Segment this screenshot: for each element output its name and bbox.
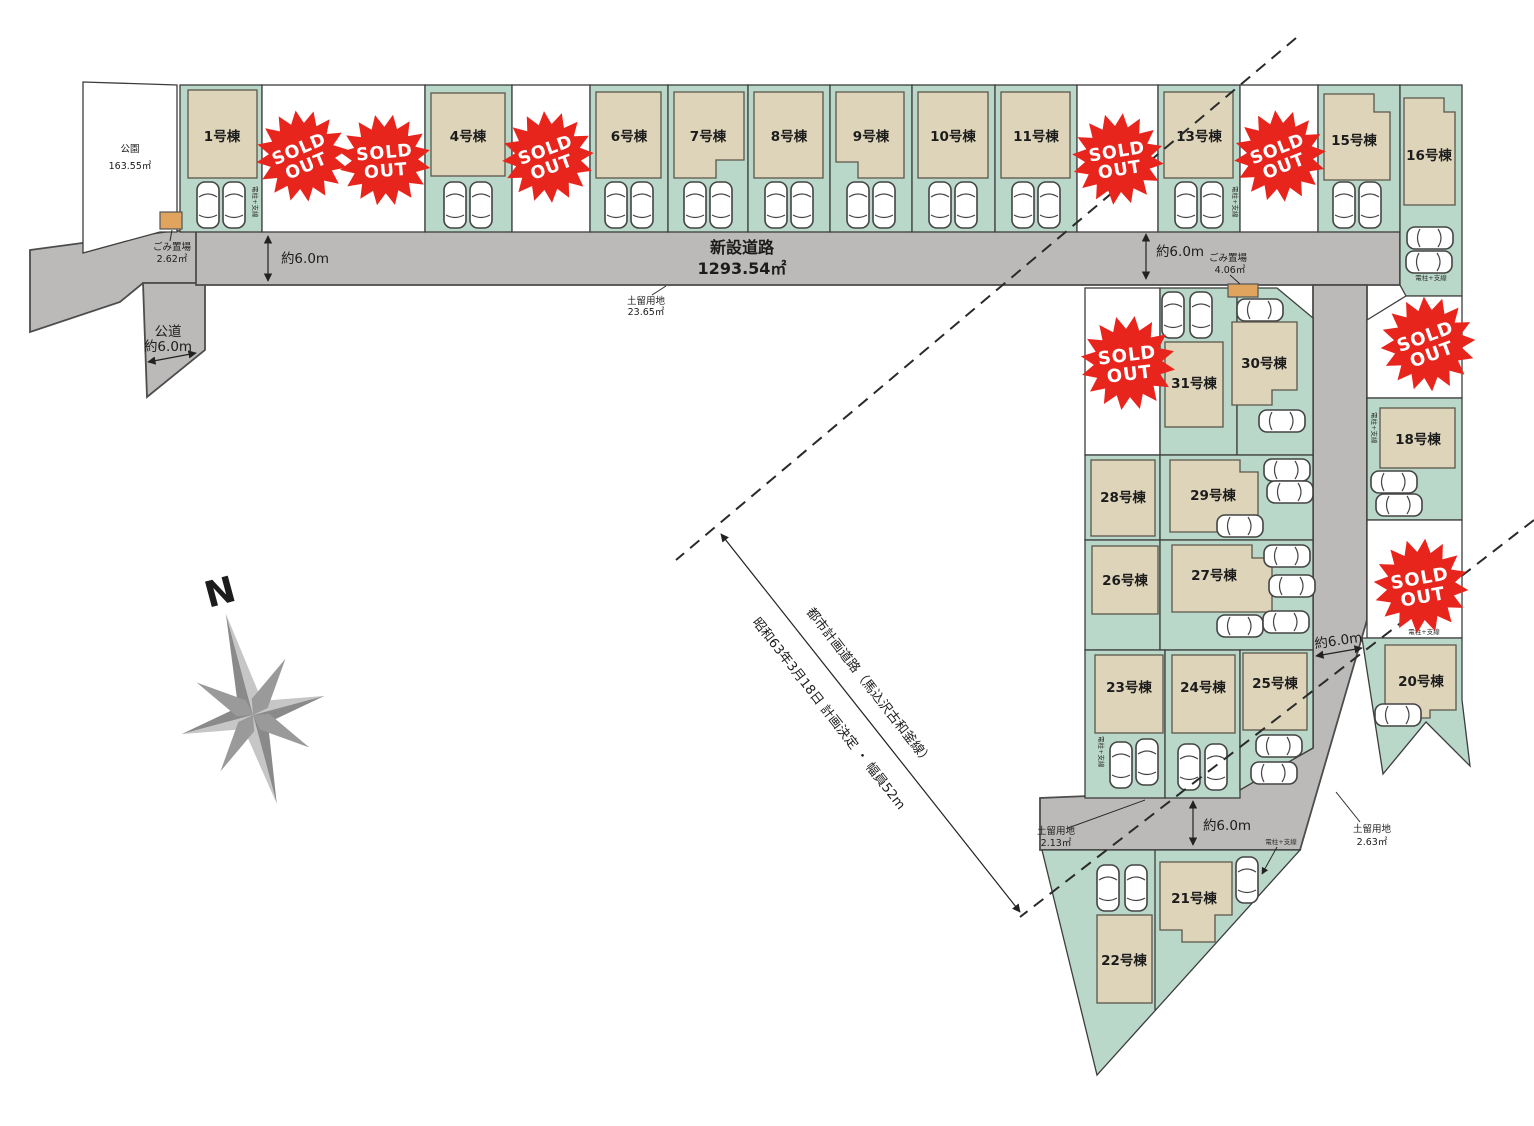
car-icon bbox=[1259, 410, 1305, 432]
car-icon bbox=[1038, 182, 1060, 228]
garbage-2-name: ごみ置場 bbox=[1209, 252, 1248, 264]
car-icon bbox=[1237, 299, 1283, 321]
retain-2-area: 2.13㎡ bbox=[1041, 838, 1072, 849]
car-icon bbox=[1264, 459, 1310, 481]
car-icon bbox=[1136, 739, 1158, 785]
lot-4-label: 4号棟 bbox=[450, 128, 487, 145]
lot-13-label: 13号棟 bbox=[1176, 128, 1222, 145]
retain-2-name: 土留用地 bbox=[1037, 825, 1076, 837]
car-icon bbox=[197, 182, 219, 228]
lot-24-label: 24号棟 bbox=[1180, 679, 1226, 696]
retain-3-area: 2.63㎡ bbox=[1357, 837, 1388, 848]
car-icon bbox=[1217, 515, 1263, 537]
lot-27-label: 27号棟 bbox=[1191, 567, 1237, 584]
retain-3-name: 土留用地 bbox=[1353, 823, 1392, 835]
lot-10-label: 10号棟 bbox=[930, 128, 976, 145]
lot-6-label: 6号棟 bbox=[611, 128, 648, 145]
retain-1-leader bbox=[652, 286, 666, 295]
car-icon bbox=[1217, 615, 1263, 637]
lot-11-label: 11号棟 bbox=[1013, 128, 1059, 145]
planned-road-line1: 都市計画道路（馬込沢古和釜線） bbox=[803, 605, 936, 769]
utility-pole-label: 電柱+支線 bbox=[1097, 736, 1106, 768]
retain-1-area: 23.65㎡ bbox=[628, 307, 665, 318]
lot-9-label: 9号棟 bbox=[853, 128, 890, 145]
garbage-1-name: ごみ置場 bbox=[153, 241, 192, 253]
car-icon bbox=[223, 182, 245, 228]
public-road-6m: 約6.0m bbox=[144, 339, 192, 355]
car-icon bbox=[444, 182, 466, 228]
car-icon bbox=[1375, 704, 1421, 726]
garbage-box-2 bbox=[1228, 284, 1258, 297]
utility-pole-label: 電柱+支線 bbox=[1415, 273, 1447, 282]
lot-18-label: 18号棟 bbox=[1395, 431, 1441, 448]
dim-left-6m: 約6.0m bbox=[281, 251, 329, 267]
garbage-2-area: 4.06㎡ bbox=[1215, 265, 1246, 276]
car-icon bbox=[1097, 865, 1119, 911]
compass-rose-icon: N bbox=[143, 554, 348, 823]
site-plan-svg: 公園 163.55㎡ 1号棟 電柱+支線 4号棟 6号棟 7号棟 8号棟 9号棟… bbox=[0, 0, 1534, 1122]
park-area-label: 163.55㎡ bbox=[109, 161, 152, 172]
public-road-name: 公道 bbox=[155, 324, 182, 340]
lot-29-label: 29号棟 bbox=[1190, 487, 1236, 504]
park-name-label: 公園 bbox=[120, 144, 139, 155]
car-icon bbox=[1012, 182, 1034, 228]
car-icon bbox=[1269, 575, 1315, 597]
car-icon bbox=[1162, 292, 1184, 338]
planned-road-width-arrow bbox=[721, 534, 1020, 912]
compass-north-label: N bbox=[200, 569, 240, 616]
bottom-road-6m: 約6.0m bbox=[1203, 818, 1251, 834]
car-icon bbox=[1110, 742, 1132, 788]
lot-26-label: 26号棟 bbox=[1102, 572, 1148, 589]
car-icon bbox=[1371, 471, 1417, 493]
new-road-name: 新設道路 bbox=[710, 238, 775, 257]
car-icon bbox=[1263, 611, 1309, 633]
car-icon bbox=[1190, 292, 1212, 338]
car-icon bbox=[1407, 227, 1453, 249]
car-icon bbox=[1256, 735, 1302, 757]
lot-15-label: 15号棟 bbox=[1331, 132, 1377, 149]
car-icon bbox=[1333, 182, 1355, 228]
new-road-area: 1293.54㎡ bbox=[698, 259, 787, 278]
lot-23-label: 23号棟 bbox=[1106, 679, 1152, 696]
car-icon bbox=[1175, 182, 1197, 228]
lot-21-label: 21号棟 bbox=[1171, 890, 1217, 907]
lot-7-label: 7号棟 bbox=[690, 128, 727, 145]
lot-8-label: 8号棟 bbox=[771, 128, 808, 145]
car-icon bbox=[1125, 865, 1147, 911]
car-icon bbox=[1264, 545, 1310, 567]
svg-text:OUT: OUT bbox=[363, 160, 408, 184]
car-icon bbox=[470, 182, 492, 228]
car-icon bbox=[1201, 182, 1223, 228]
lot-28-label: 28号棟 bbox=[1100, 489, 1146, 506]
site-plan: 公園 163.55㎡ 1号棟 電柱+支線 4号棟 6号棟 7号棟 8号棟 9号棟… bbox=[0, 0, 1534, 1122]
car-icon bbox=[873, 182, 895, 228]
retain-3-leader bbox=[1336, 792, 1360, 822]
car-icon bbox=[631, 182, 653, 228]
car-icon bbox=[1178, 744, 1200, 790]
car-icon bbox=[1376, 494, 1422, 516]
car-icon bbox=[1251, 762, 1297, 784]
car-icon bbox=[955, 182, 977, 228]
retain-1-name: 土留用地 bbox=[627, 295, 666, 307]
car-icon bbox=[710, 182, 732, 228]
lot-16-label: 16号棟 bbox=[1406, 147, 1452, 164]
car-icon bbox=[791, 182, 813, 228]
lot-31-label: 31号棟 bbox=[1171, 375, 1217, 392]
car-icon bbox=[1406, 251, 1452, 273]
utility-pole-label: 電柱+支線 bbox=[1265, 837, 1297, 846]
car-icon bbox=[605, 182, 627, 228]
lot-20-label: 20号棟 bbox=[1398, 673, 1444, 690]
car-icon bbox=[1359, 182, 1381, 228]
garbage-box-1 bbox=[160, 212, 182, 229]
dim-right-6m: 約6.0m bbox=[1156, 244, 1204, 260]
lot-30-label: 30号棟 bbox=[1241, 355, 1287, 372]
car-icon bbox=[1236, 857, 1258, 903]
utility-pole-label: 電柱+支線 bbox=[1370, 412, 1379, 444]
car-icon bbox=[1267, 481, 1313, 503]
car-icon bbox=[847, 182, 869, 228]
car-icon bbox=[684, 182, 706, 228]
planned-road-text-1-group: 都市計画道路（馬込沢古和釜線） bbox=[803, 605, 936, 769]
lot-1-label: 1号棟 bbox=[204, 128, 241, 145]
lot-22-label: 22号棟 bbox=[1101, 952, 1147, 969]
lot-25-label: 25号棟 bbox=[1252, 675, 1298, 692]
utility-pole-label: 電柱+支線 bbox=[1231, 186, 1240, 218]
car-icon bbox=[765, 182, 787, 228]
car-icon bbox=[1205, 744, 1227, 790]
car-icon bbox=[929, 182, 951, 228]
utility-pole-label: 電柱+支線 bbox=[251, 186, 260, 218]
garbage-1-area: 2.62㎡ bbox=[157, 254, 188, 265]
